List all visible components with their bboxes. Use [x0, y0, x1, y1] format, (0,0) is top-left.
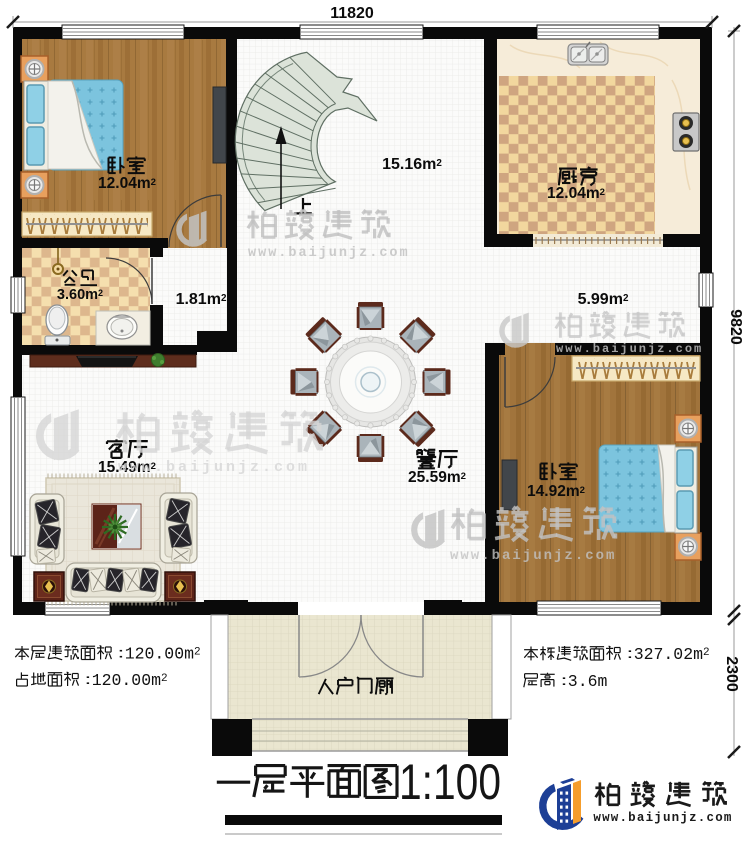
svg-text:120.00m2: 120.00m2 [92, 671, 168, 690]
svg-text:www.baijunjz.com: www.baijunjz.com [556, 342, 703, 356]
svg-text:www.baijunjz.com: www.baijunjz.com [248, 246, 410, 261]
svg-text:1.81m2: 1.81m2 [176, 291, 227, 308]
svg-text:11820: 11820 [330, 5, 374, 22]
svg-text:www.baijunjz.com: www.baijunjz.com [450, 548, 616, 564]
svg-text:1:100: 1:100 [399, 754, 501, 810]
svg-text:120.00m2: 120.00m2 [125, 645, 201, 664]
svg-text:5.99m2: 5.99m2 [578, 291, 629, 308]
svg-text:15.16m2: 15.16m2 [382, 156, 442, 173]
svg-text:25.59m2: 25.59m2 [408, 469, 466, 486]
svg-text:12.04m2: 12.04m2 [547, 185, 605, 202]
svg-text:3.60m2: 3.60m2 [57, 287, 103, 303]
svg-text:www.baijunjz.com: www.baijunjz.com [118, 459, 310, 476]
svg-text:12.04m2: 12.04m2 [98, 175, 156, 192]
svg-text:www.baijunjz.com: www.baijunjz.com [593, 811, 732, 825]
svg-text:3.6m: 3.6m [568, 672, 608, 691]
svg-text:9820: 9820 [727, 309, 744, 345]
svg-text:14.92m2: 14.92m2 [527, 483, 585, 500]
svg-text:2300: 2300 [723, 656, 740, 692]
svg-text:327.02m2: 327.02m2 [634, 645, 710, 664]
